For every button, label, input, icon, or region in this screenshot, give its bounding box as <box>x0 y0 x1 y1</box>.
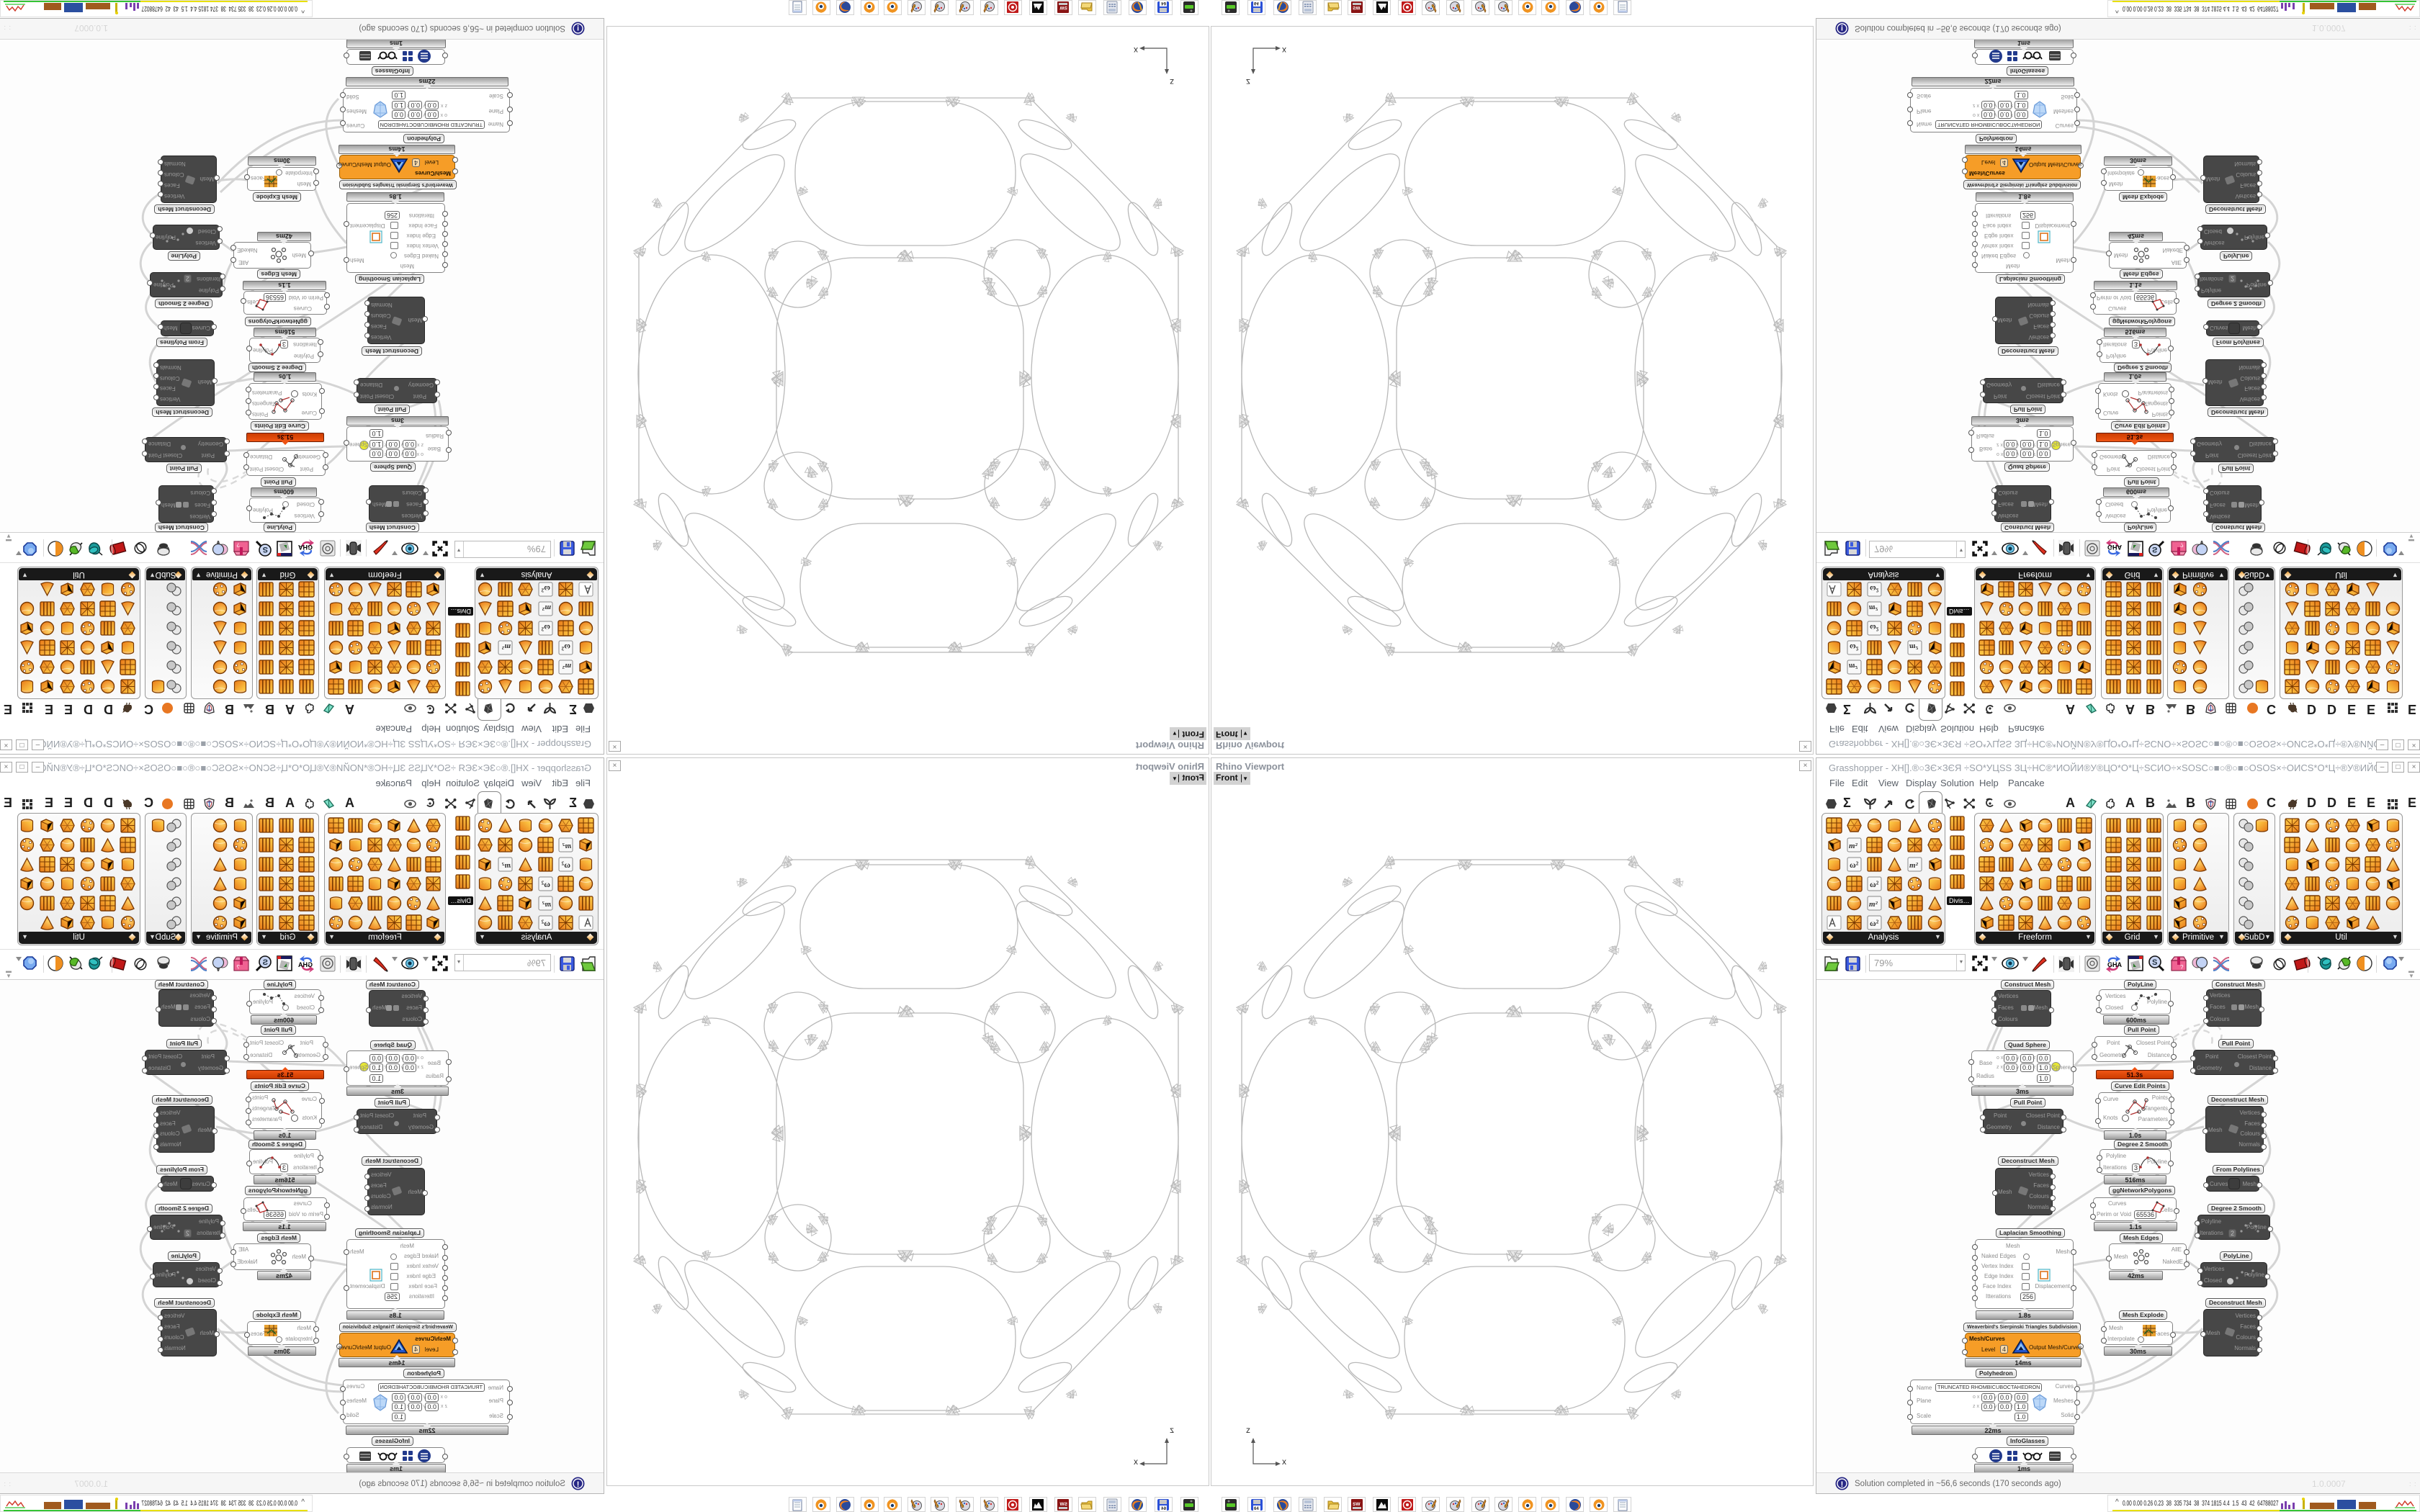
svg-text:?: ? <box>2180 964 2184 971</box>
svg-text:SW: SW <box>1059 1502 1067 1507</box>
svg-text:SW: SW <box>1059 5 1067 10</box>
svg-text:?: ? <box>236 964 240 971</box>
svg-text:GHA: GHA <box>298 544 313 551</box>
svg-text:64: 64 <box>1161 1507 1166 1511</box>
svg-text:!: ! <box>1841 1480 1844 1489</box>
svg-text:S: S <box>2152 545 2157 554</box>
svg-text:GHA: GHA <box>2107 961 2122 968</box>
svg-text:S: S <box>2152 958 2157 967</box>
svg-text:S: S <box>263 958 268 967</box>
svg-text:S: S <box>263 545 268 554</box>
svg-text:SW: SW <box>1353 5 1361 10</box>
svg-text:!: ! <box>577 1480 580 1489</box>
svg-text:64: 64 <box>1254 1 1259 5</box>
svg-text:!: ! <box>577 23 580 32</box>
svg-text:SW: SW <box>1353 1502 1361 1507</box>
svg-text:?: ? <box>2180 541 2184 548</box>
svg-text:!: ! <box>1841 23 1844 32</box>
svg-text:64: 64 <box>1254 1507 1259 1511</box>
svg-text:?: ? <box>236 541 240 548</box>
svg-text:64: 64 <box>1161 1 1166 5</box>
svg-text:GHA: GHA <box>298 961 313 968</box>
svg-text:GHA: GHA <box>2107 544 2122 551</box>
